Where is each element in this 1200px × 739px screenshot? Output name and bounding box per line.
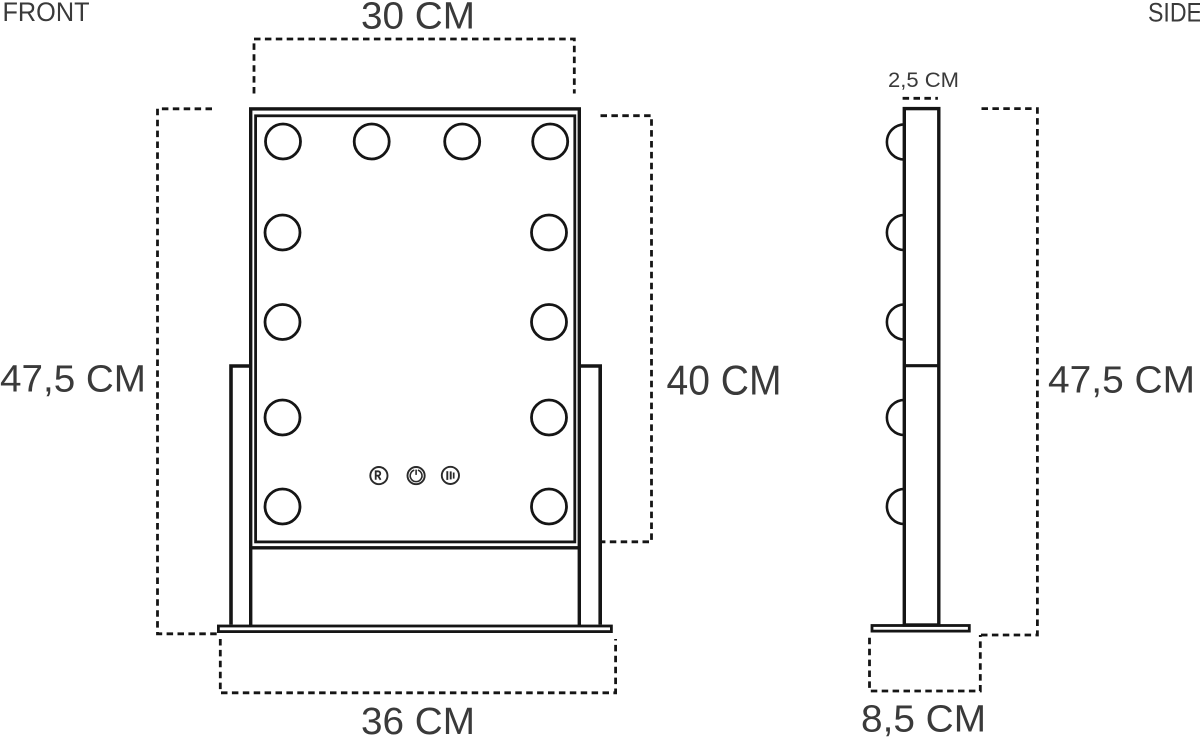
svg-text:47,5 CM: 47,5 CM [1048, 360, 1195, 402]
svg-text:30 CM: 30 CM [361, 0, 475, 38]
svg-text:47,5 CM: 47,5 CM [0, 358, 146, 400]
svg-text:40 CM: 40 CM [667, 356, 782, 403]
svg-text:8,5 CM: 8,5 CM [861, 699, 986, 739]
svg-text:2,5 CM: 2,5 CM [888, 69, 959, 92]
svg-text:FRONT: FRONT [3, 0, 90, 27]
svg-text:36 CM: 36 CM [361, 701, 475, 739]
svg-text:SIDE: SIDE [1148, 0, 1200, 28]
